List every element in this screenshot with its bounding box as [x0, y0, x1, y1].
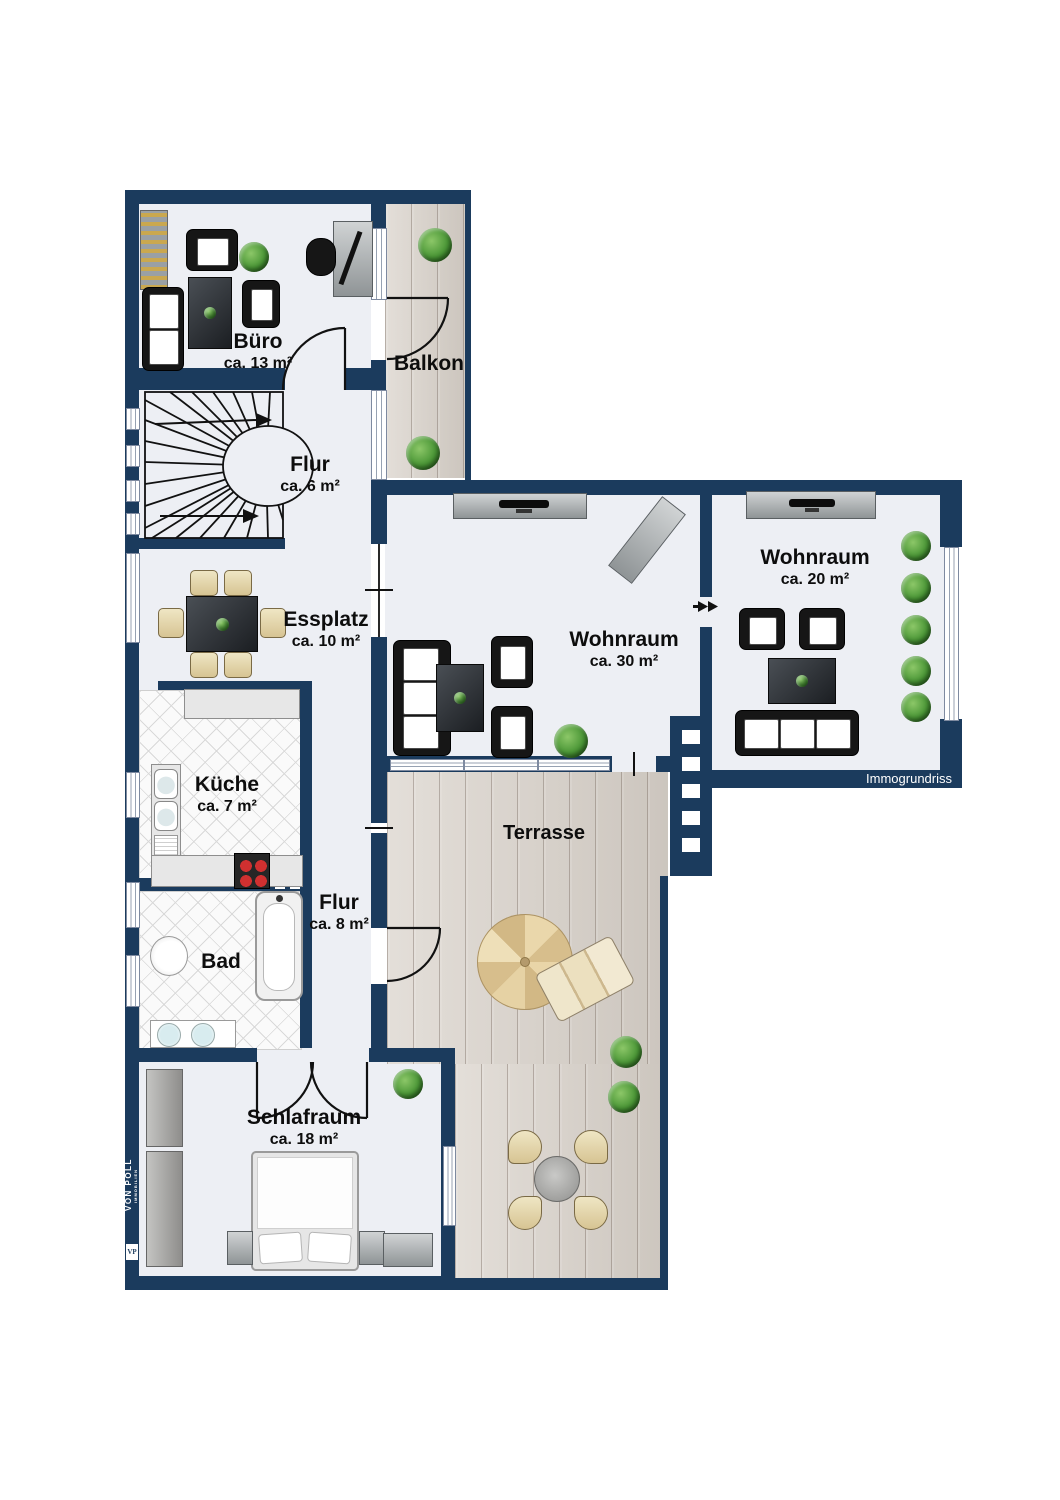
- room-area: ca. 8 m²: [269, 916, 409, 935]
- window-icon: [126, 513, 140, 535]
- sofa-cushion: [816, 719, 851, 749]
- washbasin-icon: [150, 1020, 236, 1048]
- brand-badge-vp: VP: [126, 1244, 138, 1260]
- plant-icon: [901, 692, 931, 722]
- pillar-window: [682, 838, 700, 852]
- armchair-cushion: [500, 646, 526, 680]
- plant-icon: [901, 656, 931, 686]
- room-name: Flur: [240, 453, 380, 478]
- table-plant-icon: [216, 618, 229, 631]
- kitchen-counter-icon: [151, 855, 303, 887]
- room-name: Küche: [157, 773, 297, 798]
- wall-balcony-rail: [465, 204, 471, 480]
- wall-segment: [139, 538, 285, 549]
- room-label-schlafraum: Schlafraum ca. 18 m²: [234, 1106, 374, 1150]
- window-icon: [464, 759, 538, 771]
- window-icon: [126, 445, 140, 467]
- room-area: ca. 10 m²: [256, 633, 396, 652]
- table-plant-icon: [796, 675, 808, 687]
- armchair-icon: [739, 608, 785, 650]
- brand-immobilien: IMMOBILIEN: [133, 1138, 138, 1234]
- sofa-cushion: [149, 294, 179, 329]
- table-plant-icon: [454, 692, 466, 704]
- basin-icon: [191, 1023, 215, 1047]
- sofa-cushion: [403, 648, 439, 681]
- room-name: Wohnraum: [745, 546, 885, 571]
- wall-segment: [125, 190, 471, 204]
- desk-icon: [333, 221, 373, 297]
- chair-icon: [574, 1130, 608, 1164]
- wall-segment: [125, 1048, 257, 1062]
- tv-sideboard-icon: [746, 491, 876, 519]
- pillow-icon: [258, 1232, 303, 1265]
- wall-terrace-border: [455, 1278, 668, 1290]
- tv-stand: [805, 508, 819, 512]
- window-icon: [944, 547, 959, 721]
- dining-table-icon: [186, 596, 258, 652]
- room-name: Essplatz: [256, 608, 396, 633]
- bookshelf-icon: [140, 210, 168, 290]
- kitchen-counter-icon: [184, 689, 300, 719]
- armchair-icon: [491, 636, 533, 688]
- room-area: ca. 13 m²: [188, 355, 328, 374]
- nightstand-icon: [227, 1231, 253, 1265]
- plant-icon: [608, 1081, 640, 1113]
- armchair-icon: [186, 229, 238, 271]
- wall-segment: [125, 204, 139, 390]
- plant-icon: [418, 228, 452, 262]
- room-label-wohnraum-klein: Wohnraum ca. 20 m²: [745, 546, 885, 590]
- armchair-icon: [799, 608, 845, 650]
- armchair-icon: [491, 706, 533, 758]
- plant-icon: [393, 1069, 423, 1099]
- room-name: Schlafraum: [234, 1106, 374, 1131]
- plant-icon: [239, 242, 269, 272]
- room-area: ca. 30 m²: [554, 653, 694, 672]
- chair-icon: [190, 652, 218, 678]
- plant-icon: [610, 1036, 642, 1068]
- chair-icon: [224, 652, 252, 678]
- armchair-cushion: [749, 617, 777, 645]
- window-icon: [126, 772, 140, 818]
- pillow-icon: [307, 1232, 352, 1265]
- tv-stand: [516, 509, 532, 513]
- wardrobe-icon: [146, 1151, 183, 1267]
- bed-duvet: [257, 1157, 353, 1229]
- armchair-cushion: [197, 238, 229, 266]
- pillar-window: [682, 730, 700, 744]
- tv-sideboard-icon: [453, 493, 587, 519]
- plant-icon: [901, 531, 931, 561]
- room-label-kueche: Küche ca. 7 m²: [157, 773, 297, 817]
- chair-icon: [190, 570, 218, 596]
- door-opening: [612, 756, 656, 772]
- room-label-balkon: Balkon: [369, 352, 489, 377]
- wall-segment: [700, 627, 712, 720]
- wall-segment: [371, 637, 387, 823]
- chair-icon: [574, 1196, 608, 1230]
- dresser-icon: [383, 1233, 433, 1267]
- tv-icon: [789, 499, 835, 507]
- room-name: Büro: [188, 330, 328, 355]
- wall-segment: [940, 495, 962, 547]
- plant-icon: [901, 573, 931, 603]
- room-name: Wohnraum: [554, 628, 694, 653]
- brand-vonpoll: VON POLL: [124, 1130, 133, 1240]
- room-name: Bad: [151, 950, 291, 975]
- basin-icon: [157, 1023, 181, 1047]
- sofa-cushion: [403, 716, 439, 749]
- floor-plan: Büro ca. 13 m² Balkon Flur ca. 6 m² Essp…: [0, 0, 1060, 1500]
- nightstand-icon: [359, 1231, 385, 1265]
- pillar-window: [682, 784, 700, 798]
- wall-segment: [371, 204, 386, 228]
- desk-chair-icon: [306, 238, 336, 276]
- table-plant-icon: [204, 307, 216, 319]
- sofa-cushion: [149, 330, 179, 365]
- room-label-bad: Bad: [151, 950, 291, 975]
- tv-icon: [499, 500, 549, 508]
- sofa-cushion: [403, 682, 439, 715]
- room-name: Balkon: [369, 352, 489, 377]
- room-name: Terrasse: [474, 822, 614, 846]
- window-icon: [371, 228, 387, 300]
- armchair-icon: [242, 280, 280, 328]
- plant-icon: [406, 436, 440, 470]
- room-area: ca. 6 m²: [240, 478, 380, 497]
- armchair-cushion: [809, 617, 837, 645]
- sofa-icon: [142, 287, 184, 371]
- parasol-pole: [520, 957, 530, 967]
- room-area: ca. 20 m²: [745, 571, 885, 590]
- wall-segment: [300, 681, 312, 881]
- sofa-cushion: [744, 719, 779, 749]
- coffee-table-icon: [768, 658, 836, 704]
- wall-segment: [940, 719, 962, 772]
- window-icon: [126, 955, 140, 1007]
- armchair-cushion: [251, 289, 273, 321]
- room-label-wohnraum-gross: Wohnraum ca. 30 m²: [554, 628, 694, 672]
- coffee-table-icon: [436, 664, 484, 732]
- chair-icon: [508, 1196, 542, 1230]
- window-icon: [390, 759, 464, 771]
- room-label-essplatz: Essplatz ca. 10 m²: [256, 608, 396, 652]
- room-area: ca. 7 m²: [157, 798, 297, 817]
- plant-icon: [554, 724, 588, 758]
- room-label-flur-unten: Flur ca. 8 m²: [269, 891, 409, 935]
- pillar-window: [682, 757, 700, 771]
- chair-icon: [508, 1130, 542, 1164]
- wall-segment: [125, 1276, 455, 1290]
- window-icon: [538, 759, 610, 771]
- terrace-table-icon: [534, 1156, 580, 1202]
- monitor-icon: [339, 231, 363, 285]
- wardrobe-icon: [146, 1069, 183, 1147]
- room-area: ca. 18 m²: [234, 1131, 374, 1150]
- wall-segment: [700, 495, 712, 597]
- wall-segment: [369, 1048, 455, 1062]
- plant-icon: [901, 615, 931, 645]
- wall-terrace-border: [660, 876, 668, 1282]
- room-label-terrasse: Terrasse: [474, 822, 614, 846]
- chair-icon: [224, 570, 252, 596]
- room-label-flur-treppe: Flur ca. 6 m²: [240, 453, 380, 497]
- armchair-cushion: [500, 716, 526, 750]
- window-icon: [126, 553, 140, 643]
- window-icon: [443, 1146, 456, 1226]
- room-label-buero: Büro ca. 13 m²: [188, 330, 328, 374]
- window-icon: [126, 408, 140, 430]
- window-icon: [126, 882, 140, 928]
- watermark-immogrundriss: Immogrundriss: [770, 771, 952, 786]
- sofa-cushion: [780, 719, 815, 749]
- stove-icon: [234, 853, 270, 889]
- pillar-window: [682, 811, 700, 825]
- chair-icon: [158, 608, 184, 638]
- window-icon: [126, 480, 140, 502]
- bed-icon: [251, 1151, 359, 1271]
- sofa-icon: [735, 710, 859, 756]
- room-name: Flur: [269, 891, 409, 916]
